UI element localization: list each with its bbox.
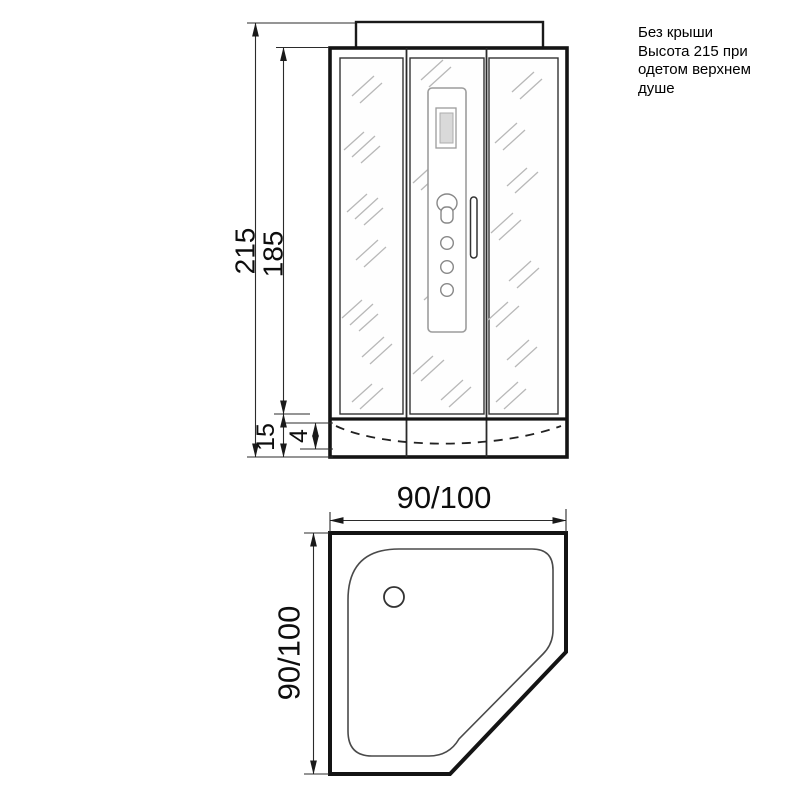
dim-label-glass-height: 185	[258, 231, 289, 278]
drawing-svg: 215 185 15 4 90/100 90/100	[0, 0, 800, 800]
shower-cabin-technical-drawing: 215 185 15 4 90/100 90/100	[0, 0, 800, 800]
jet-knob-2	[441, 261, 454, 274]
glass-panel-left	[340, 58, 403, 414]
jet-knob-1	[441, 237, 454, 250]
dim-label-width: 90/100	[397, 480, 492, 515]
control-display-screen	[440, 113, 453, 143]
glass-panel-right	[489, 58, 558, 414]
roof-cap	[356, 22, 543, 48]
jet-knob-3	[441, 284, 454, 297]
drain-hole	[384, 587, 404, 607]
door-handle	[471, 197, 478, 258]
dim-label-total-height: 215	[230, 228, 261, 275]
tray-top-view: 90/100 90/100	[272, 480, 567, 774]
front-view: 215 185 15 4	[230, 22, 568, 457]
control-column	[428, 88, 466, 332]
dim-label-tray-depth: 4	[285, 429, 313, 443]
dim-label-depth: 90/100	[272, 606, 307, 701]
dim-label-tray-height: 15	[252, 423, 280, 451]
mixer-lever	[441, 207, 453, 223]
tray-inner-basin	[348, 549, 553, 756]
annotation-note: Без крыши Высота 215 при одетом верхнем …	[638, 24, 798, 98]
